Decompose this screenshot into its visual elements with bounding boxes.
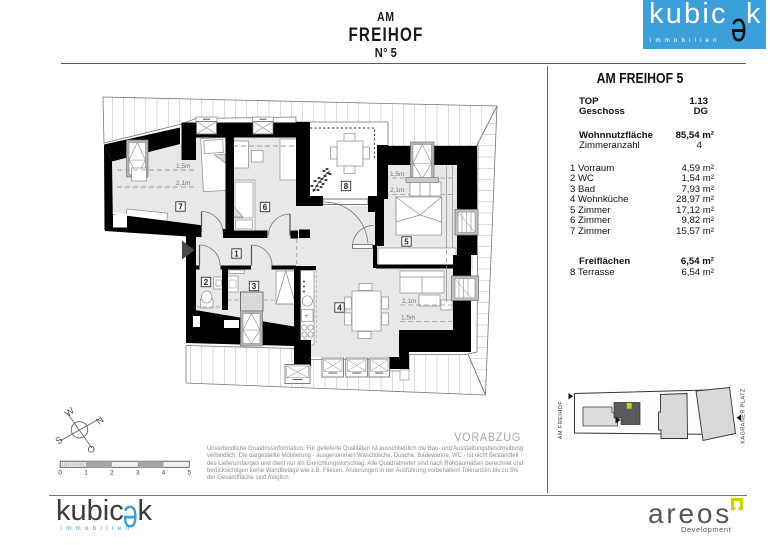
svg-text:4: 4 [337,303,342,312]
svg-text:1: 1 [84,470,88,477]
svg-text:0: 0 [58,470,62,477]
svg-text:2: 2 [110,470,114,477]
svg-text:8: 8 [344,182,349,191]
svg-text:3: 3 [252,282,257,291]
svg-text:1,5m: 1,5m [401,315,415,322]
svg-text:W: W [63,406,77,420]
svg-text:3: 3 [136,470,140,477]
svg-text:2,1m: 2,1m [176,180,190,187]
svg-text:5: 5 [187,470,191,477]
svg-text:AM FREIHOF: AM FREIHOF [558,401,564,440]
svg-text:5: 5 [404,237,409,246]
svg-text:O: O [88,445,95,456]
svg-text:4: 4 [162,470,166,477]
svg-text:1,5m: 1,5m [390,171,404,178]
svg-text:2,1m: 2,1m [390,187,404,194]
svg-text:KAGRANER PLATZ: KAGRANER PLATZ [741,388,747,444]
svg-text:7: 7 [178,202,183,211]
svg-text:S: S [54,434,66,447]
svg-text:2: 2 [204,278,209,287]
svg-text:1: 1 [234,249,239,258]
svg-text:+: + [305,314,309,320]
svg-text:N: N [94,414,106,427]
svg-text:1,5m: 1,5m [176,163,190,170]
svg-text:6: 6 [263,203,268,212]
svg-text:2,1m: 2,1m [402,298,416,305]
